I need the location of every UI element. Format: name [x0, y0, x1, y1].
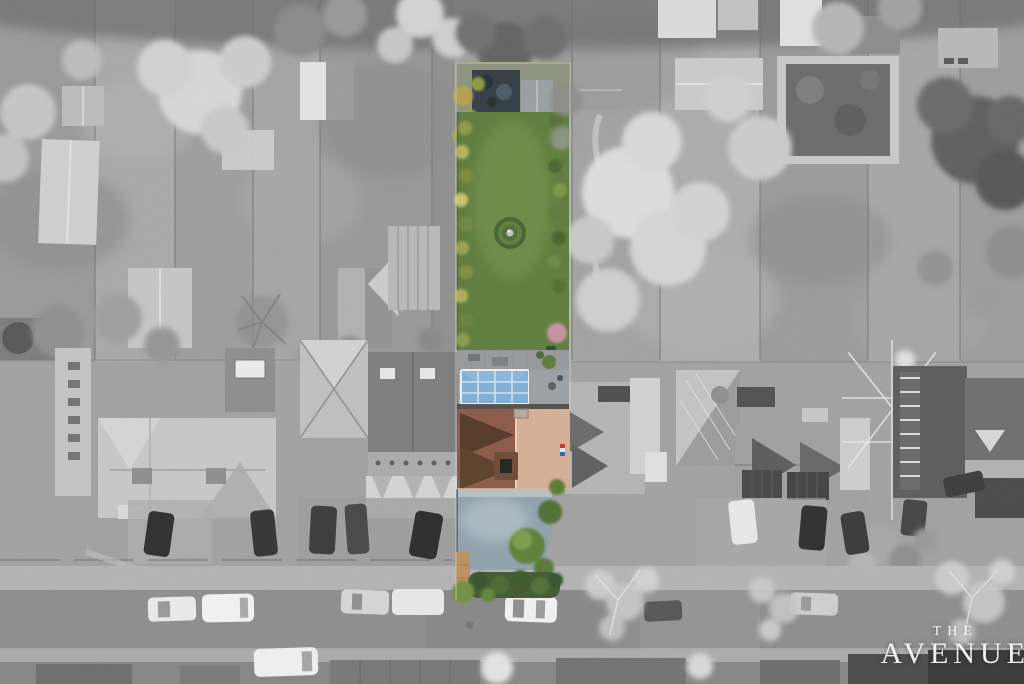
watermark-line2: AVENUE [881, 639, 1024, 670]
aerial-photo: THE AVENUE [0, 0, 1024, 684]
photo-grain [0, 0, 1024, 684]
watermark-logo: THE AVENUE [881, 625, 1024, 670]
